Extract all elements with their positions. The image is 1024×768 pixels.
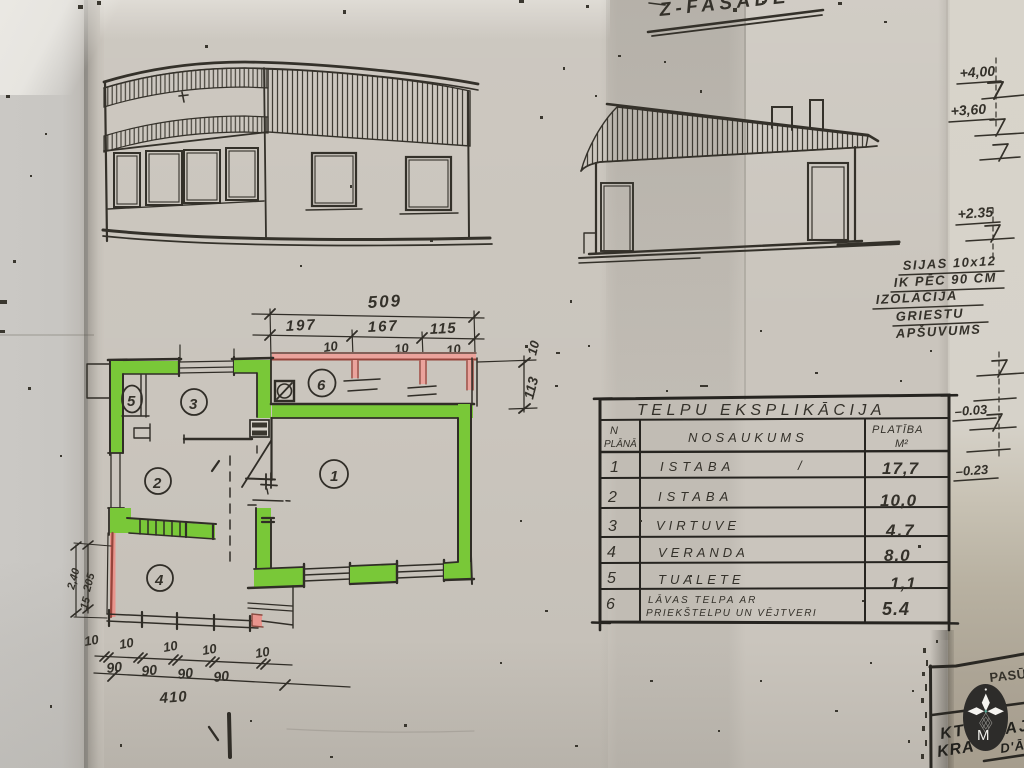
svg-text:8.0: 8.0: [884, 546, 911, 565]
svg-text:5: 5: [127, 393, 136, 410]
svg-text:10: 10: [254, 644, 272, 661]
svg-text:APŠUVUMS: APŠUVUMS: [894, 322, 981, 342]
svg-text:4.7: 4.7: [885, 521, 916, 540]
svg-text:15: 15: [78, 595, 93, 611]
svg-text:10: 10: [162, 638, 180, 655]
svg-text:VIRTUVE: VIRTUVE: [656, 518, 740, 533]
svg-text:–0.03: –0.03: [954, 402, 988, 419]
svg-text:NOSAUKUMS: NOSAUKUMS: [688, 430, 808, 445]
svg-text:ISTABA: ISTABA: [660, 459, 735, 474]
svg-text:10,0: 10,0: [880, 491, 917, 510]
svg-text:90: 90: [213, 667, 230, 685]
svg-text:2: 2: [607, 489, 617, 506]
svg-text:PASŪT: PASŪT: [989, 665, 1024, 685]
svg-text:4: 4: [607, 544, 616, 561]
svg-text:LĀVAS TELPA AR: LĀVAS TELPA AR: [648, 594, 757, 606]
svg-text:PLATĪBA: PLATĪBA: [872, 424, 923, 436]
svg-text:10: 10: [201, 641, 219, 658]
svg-text:167: 167: [367, 317, 399, 336]
svg-text:+2.35: +2.35: [957, 204, 994, 222]
svg-text:/: /: [797, 458, 803, 473]
svg-text:VERANDA: VERANDA: [658, 545, 749, 560]
svg-text:PRIEKŠTELPU UN VĒJTVERI: PRIEKŠTELPU UN VĒJTVERI: [646, 606, 817, 619]
svg-text:2: 2: [152, 475, 162, 492]
svg-text:10: 10: [83, 632, 101, 649]
svg-text:509: 509: [367, 291, 402, 312]
svg-text:ISTABA: ISTABA: [658, 489, 733, 504]
svg-text:6: 6: [606, 596, 615, 613]
svg-text:1,1: 1,1: [890, 574, 917, 593]
svg-text:205: 205: [81, 571, 98, 594]
svg-text:10: 10: [118, 635, 136, 652]
svg-text:197: 197: [285, 316, 317, 335]
svg-text:5: 5: [607, 570, 616, 587]
svg-text:5.4: 5.4: [882, 599, 910, 619]
svg-text:M: M: [977, 727, 990, 744]
svg-text:2,40: 2,40: [65, 566, 83, 592]
svg-text:Z-FASADE: Z-FASADE: [657, 0, 790, 21]
svg-text:90: 90: [177, 664, 194, 682]
svg-text:–0.23: –0.23: [955, 462, 989, 479]
svg-text:410: 410: [158, 688, 188, 707]
svg-text:1: 1: [610, 459, 619, 476]
svg-text:6: 6: [317, 377, 326, 394]
svg-text:1: 1: [330, 468, 338, 485]
svg-text:TELPU EKSPLIKĀCIJA: TELPU EKSPLIKĀCIJA: [637, 401, 886, 419]
svg-text:GRIESTU: GRIESTU: [895, 305, 964, 324]
svg-text:115: 115: [429, 320, 457, 338]
svg-text:TUALETE: TUALETE: [658, 572, 745, 587]
svg-text:+4,00: +4,00: [959, 63, 996, 81]
svg-text:N: N: [610, 425, 618, 437]
svg-text:17,7: 17,7: [882, 459, 920, 478]
svg-text:4: 4: [154, 572, 164, 589]
svg-text:3: 3: [189, 396, 198, 413]
svg-text:3: 3: [608, 518, 617, 535]
svg-text:+3,60: +3,60: [950, 101, 987, 119]
svg-text:PLĀNĀ: PLĀNĀ: [604, 438, 637, 450]
svg-text:M²: M²: [895, 438, 908, 450]
svg-text:IZOLĀCIJA: IZOLĀCIJA: [875, 288, 958, 307]
